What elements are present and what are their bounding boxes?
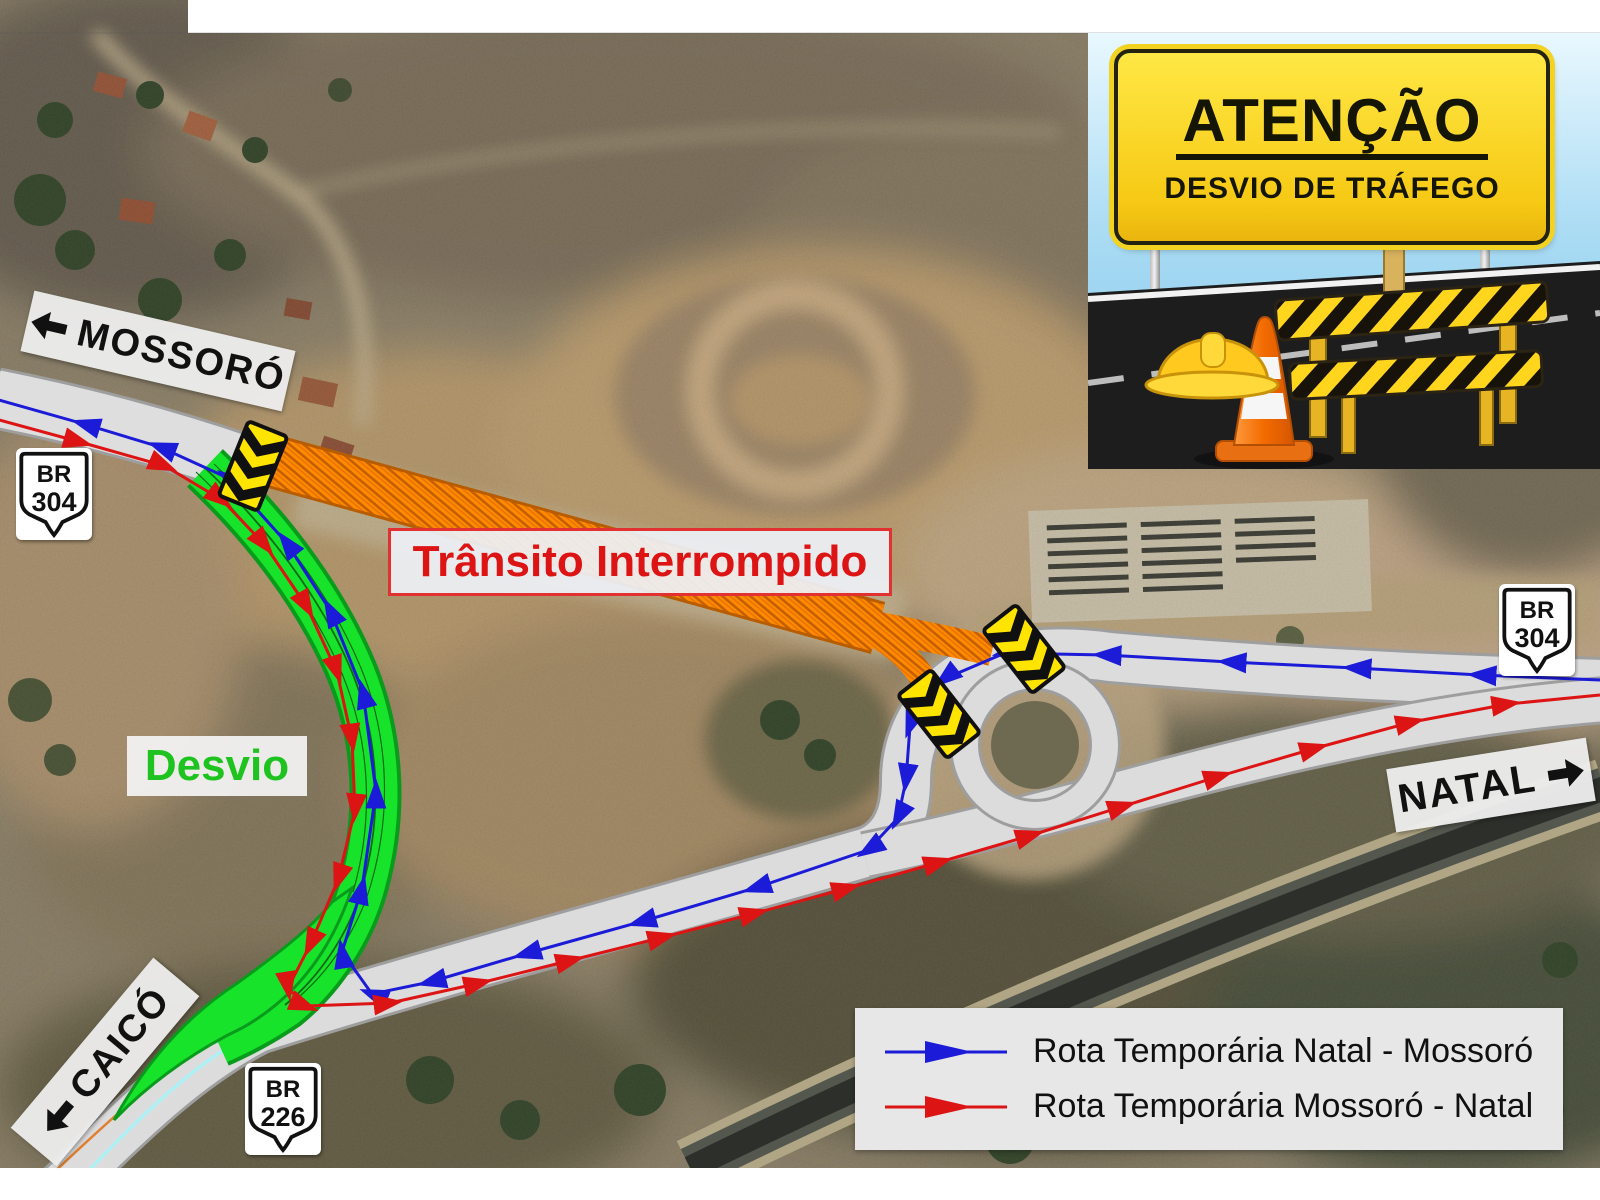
detour-text: Desvio — [145, 741, 289, 791]
attention-sign: ATENÇÃO DESVIO DE TRÁFEGO — [1114, 49, 1550, 245]
shield-route: BR — [266, 1078, 301, 1102]
closed-traffic-text: Trânsito Interrompido — [413, 537, 868, 587]
blue-route-arrow-icon — [885, 1039, 1007, 1065]
closed-traffic-label: Trânsito Interrompido — [388, 528, 892, 596]
top-margin — [188, 0, 1600, 33]
red-route-arrow-icon — [885, 1094, 1007, 1120]
detour-label: Desvio — [127, 736, 307, 796]
arrow-left-icon — [36, 1094, 82, 1141]
warning-panel: ATENÇÃO DESVIO DE TRÁFEGO — [1088, 33, 1600, 469]
shield-number: 304 — [31, 489, 76, 516]
route-legend: Rota Temporária Natal - Mossoró Rota Tem… — [855, 1008, 1563, 1150]
arrow-left-icon — [28, 307, 70, 344]
shield-br-304-left: BR 304 — [16, 448, 92, 540]
shield-number: 226 — [260, 1104, 305, 1131]
legend-label: Rota Temporária Mossoró - Natal — [1033, 1087, 1533, 1126]
shield-br-304-right: BR 304 — [1499, 584, 1575, 676]
arrow-right-icon — [1546, 756, 1586, 791]
shield-route: BR — [37, 463, 72, 487]
legend-label: Rota Temporária Natal - Mossoró — [1033, 1032, 1533, 1071]
attention-title: ATENÇÃO — [1176, 89, 1487, 160]
shield-route: BR — [1520, 599, 1555, 623]
attention-subtitle: DESVIO DE TRÁFEGO — [1164, 172, 1499, 206]
construction-illustration — [1088, 233, 1600, 469]
legend-item-mossoro-natal: Rota Temporária Mossoró - Natal — [885, 1087, 1563, 1126]
legend-item-natal-mossoro: Rota Temporária Natal - Mossoró — [885, 1032, 1563, 1071]
bottom-margin — [0, 1168, 1600, 1200]
traffic-detour-infographic: Trânsito Interrompido Desvio MOSSORÓ CAI… — [0, 0, 1600, 1200]
shield-number: 304 — [1514, 625, 1559, 652]
shield-br-226: BR 226 — [245, 1063, 321, 1155]
destination-text: NATAL — [1395, 756, 1540, 822]
